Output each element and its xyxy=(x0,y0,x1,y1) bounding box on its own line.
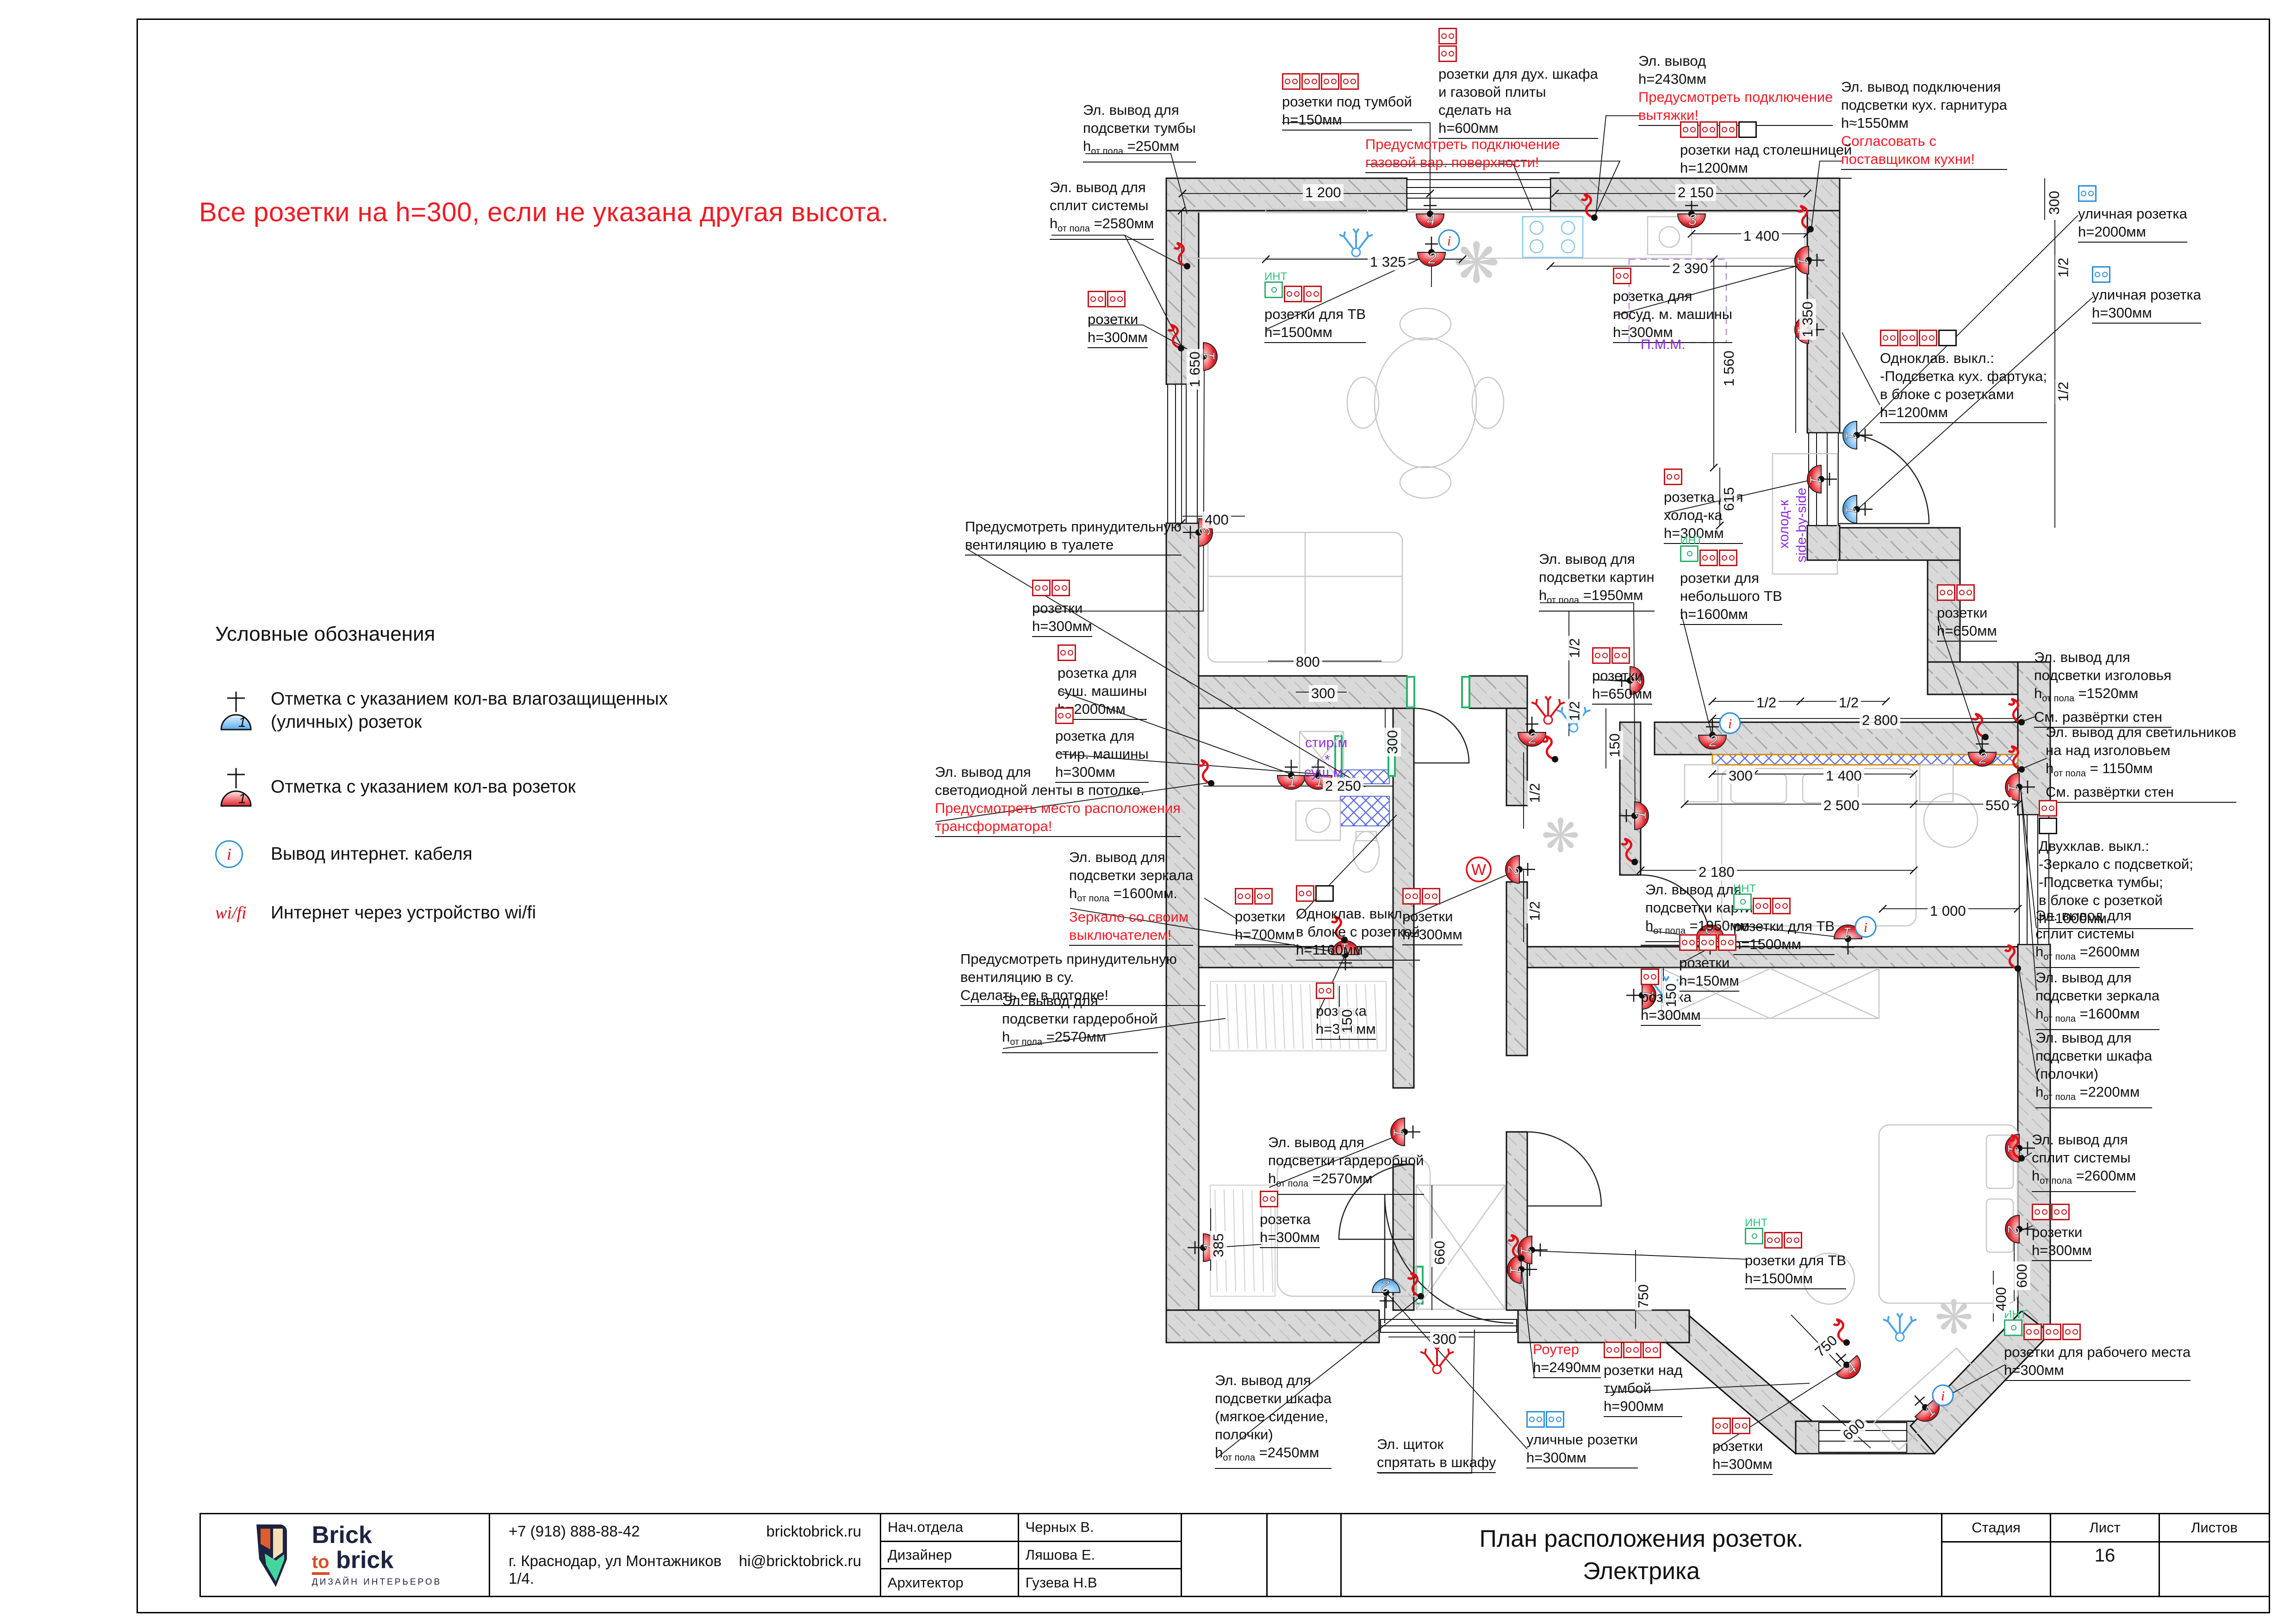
socket-icon xyxy=(1316,982,1376,999)
annotation: Эл. вывод дляподсветки гардеробнойhот по… xyxy=(1268,1133,1424,1195)
socket-icon xyxy=(2051,1204,2070,1220)
annotation-line: -Зеркало с подсветкой; xyxy=(2039,855,2193,873)
website-link[interactable]: bricktobrick.ru xyxy=(766,1523,861,1540)
svg-text:1: 1 xyxy=(2004,784,2022,793)
annotation-line: розетки xyxy=(1592,667,1652,685)
shower-zone xyxy=(1340,796,1389,826)
svg-text:1: 1 xyxy=(1842,506,1860,515)
socket-icon xyxy=(1282,73,1412,90)
annotation-line: hот пола = 1150мм xyxy=(2046,759,2236,783)
email-link[interactable]: hi@bricktobrick.ru xyxy=(739,1552,861,1587)
annotation: розеткиh=700мм xyxy=(1235,888,1295,945)
annotation-line: h=300мм xyxy=(2092,304,2201,322)
socket-icon xyxy=(1260,1191,1278,1207)
appliance-label: стир.м xyxy=(1305,735,1347,751)
annotation-line: розетки xyxy=(1235,907,1295,925)
dimension-label: 150 xyxy=(1663,981,1680,1010)
annotation-line: hот пола =1600мм. xyxy=(1069,884,1193,908)
annotation-line: розетки над xyxy=(1604,1361,1682,1379)
socket-icon xyxy=(1732,1418,1750,1434)
dimension-label: 300 xyxy=(2046,188,2063,217)
socket-icon xyxy=(1422,888,1440,905)
svg-text:i: i xyxy=(1864,920,1867,935)
socket-icon xyxy=(1260,1191,1320,1207)
annotation-line: розетки для дух. шкафа xyxy=(1438,65,1598,83)
annotation-line: спрятать в шкафу xyxy=(1377,1453,1496,1471)
socket-icon xyxy=(1880,330,1898,346)
brand-logo: Brick to brick ДИЗАЙН ИНТЕРЬЕРОВ xyxy=(201,1514,490,1596)
annotation-line: Эл. вывод для xyxy=(2035,1029,2152,1047)
sheet-number: 16 xyxy=(2051,1543,2159,1596)
annotation-line: Эл. вывод для xyxy=(1002,992,1158,1010)
annotation-line: в блоке с розетками xyxy=(1880,385,2047,403)
annotation-line: h=150мм xyxy=(1282,111,1412,129)
socket-icon xyxy=(1604,1342,1622,1358)
svg-text:1: 1 xyxy=(1632,811,1649,819)
dimension-label: 2 390 xyxy=(1670,260,1711,277)
annotation: Роутерh=2490мм xyxy=(1533,1340,1601,1378)
outdoor-socket-icon xyxy=(2092,266,2201,283)
annotation-line: розетки над столешницей xyxy=(1680,141,1852,159)
drawing-sheet: Все розетки на h=300, если не указана др… xyxy=(0,0,2296,1624)
annotation-line: сплит системы xyxy=(1050,196,1154,214)
annotation-line: Эл. вывод для светильников xyxy=(2046,723,2236,741)
dimension-label: 150 xyxy=(1339,1007,1356,1036)
socket-icon xyxy=(1235,888,1295,905)
annotation-line: подсветки кух. гарнитура xyxy=(1841,96,2007,114)
socket-icon xyxy=(1679,934,1739,951)
leader-line xyxy=(1842,332,1880,405)
annotation: розеткиh=650мм xyxy=(1592,647,1652,705)
sheet-title-line2: Электрика xyxy=(1583,1555,1700,1587)
annotation: Предусмотреть принудительнуювентиляцию в… xyxy=(965,518,1182,556)
role-value: Черных В. xyxy=(1019,1514,1181,1541)
socket-icon xyxy=(1316,982,1334,999)
socket-icon xyxy=(2032,1204,2092,1220)
contacts: +7 (918) 888-88-42 bricktobrick.ru г. Кр… xyxy=(490,1514,881,1596)
annotation-line: подсветки изголовья xyxy=(2034,666,2172,684)
dimension-label: 1 200 xyxy=(1303,184,1344,201)
annotation-line: розетки для ТВ xyxy=(1733,917,1835,935)
dimension-label: 385 xyxy=(1210,1231,1227,1260)
wifi-antenna-icon xyxy=(1531,696,1565,724)
dimension-label: 2 150 xyxy=(1675,184,1716,201)
annotation-line: Эл. вывод для xyxy=(1215,1371,1332,1389)
socket-icon xyxy=(1772,898,1791,914)
dimension-label: 300 xyxy=(1726,768,1755,784)
dimension-label: 1/2 xyxy=(2055,255,2072,280)
socket-icon xyxy=(1301,73,1320,90)
annotation: ИНТрозетки длянебольшого ТВh=1600мм xyxy=(1680,545,1782,625)
socket-icon xyxy=(2023,1324,2042,1340)
svg-text:2: 2 xyxy=(1528,730,1537,747)
annotation-line: суш. машины xyxy=(1058,682,1147,700)
dimension-label: 1 325 xyxy=(1368,254,1408,270)
socket-icon xyxy=(1753,898,1771,914)
socket-marker: 2 xyxy=(1505,856,1535,883)
socket-icon xyxy=(1719,121,1737,138)
annotation-line: h=600мм xyxy=(1438,119,1598,137)
dimension-label: 300 xyxy=(1430,1331,1459,1348)
annotation-line: на над изголовьем xyxy=(2046,741,2236,759)
socket-icon xyxy=(1235,888,1253,905)
svg-text:1: 1 xyxy=(1506,1266,1524,1275)
annotation-line: подсветки зеркала xyxy=(2035,987,2159,1005)
stage-label: Стадия xyxy=(1942,1514,2050,1543)
annotation: розетки надтумбойh=900мм xyxy=(1604,1342,1682,1417)
annotation: розеткаh=300мм xyxy=(1260,1191,1320,1248)
annotation-line: подсветки гардеробной xyxy=(1268,1151,1424,1169)
annotation: розеткиh=300мм xyxy=(1032,580,1092,637)
annotation: розетка дляпосуд. м. машиныh=300мм xyxy=(1613,268,1732,343)
annotation-line: Предусмотреть подключение xyxy=(1365,135,1560,153)
annotation-line: h=1500мм xyxy=(1264,323,1366,341)
annotation-line: розетки под тумбой xyxy=(1282,93,1412,111)
socket-icon xyxy=(1058,644,1076,661)
dimension-label: 800 xyxy=(1294,654,1322,670)
svg-text:2: 2 xyxy=(1381,1278,1390,1295)
annotation-line: Эл. вывод для xyxy=(1268,1133,1424,1151)
annotation-line: h=650мм xyxy=(1592,685,1652,703)
dimension-label: 1 560 xyxy=(1721,348,1737,389)
annotation-line: розетки xyxy=(1712,1437,1773,1455)
annotation-line: уличные розетки xyxy=(1526,1430,1638,1449)
socket-icon xyxy=(1296,885,1420,902)
annotation: уличная розеткаh=2000мм xyxy=(2078,185,2187,243)
annotation-line: h=2000мм xyxy=(2078,223,2187,241)
dimension-label: 1 000 xyxy=(1928,903,1968,919)
annotation-line: подсветки тумбы xyxy=(1083,119,1196,137)
socket-icon xyxy=(2032,1204,2050,1220)
annotation-line: сплит системы xyxy=(2032,1149,2136,1167)
annotation-line: h=700мм xyxy=(1235,925,1295,943)
socket-icon xyxy=(1284,286,1302,302)
dimension-label: 750 xyxy=(1635,1282,1652,1311)
annotation-line: посуд. м. машины xyxy=(1613,305,1732,323)
annotation-line: Предусмотреть подключение xyxy=(1638,88,1833,106)
annotation: Эл. вывод дляподсветки картинhот пола =1… xyxy=(1539,550,1655,612)
annotation: уличная розеткаh=300мм xyxy=(2092,266,2201,324)
annotation: Одноклав. выкл.в блоке с розеткойh=1160м… xyxy=(1296,885,1420,961)
svg-text:W: W xyxy=(1471,861,1486,879)
annotation-line: Согласовать с xyxy=(1841,132,2007,150)
annotation-line: Эл. вывод для xyxy=(935,763,1181,781)
socket-icon xyxy=(1937,584,1997,601)
socket-icon xyxy=(1680,121,1699,138)
sheet-label: Лист xyxy=(2051,1514,2159,1543)
svg-text:1: 1 xyxy=(1517,1247,1535,1255)
svg-text:1: 1 xyxy=(1842,432,1860,441)
socket-icon xyxy=(2039,800,2057,817)
socket-icon xyxy=(1592,647,1652,664)
annotation-line: в блоке с розеткой xyxy=(1296,923,1420,941)
socket-icon xyxy=(1623,1342,1642,1358)
socket-icon xyxy=(1899,330,1918,346)
socket-icon xyxy=(2039,800,2193,834)
dimension-label: 1/2 xyxy=(1527,781,1543,805)
socket-icon xyxy=(1719,550,1737,566)
wifi-antenna-icon xyxy=(1420,1346,1454,1374)
socket-icon xyxy=(1282,73,1300,90)
svg-text:1: 1 xyxy=(1806,476,1824,485)
svg-text:2: 2 xyxy=(1505,866,1522,875)
socket-icon: ИНТ xyxy=(1733,893,1835,914)
socket-icon xyxy=(1641,968,1659,985)
annotation: розеткиh=650мм xyxy=(1937,584,1997,642)
annotation-line: hот пола =2570мм xyxy=(1002,1028,1158,1051)
annotation-line: Эл. щиток xyxy=(1377,1435,1496,1453)
annotation-line: Эл. вывод для xyxy=(1050,178,1154,196)
leader-line xyxy=(1681,612,1712,737)
socket-icon xyxy=(1438,45,1457,62)
socket-icon xyxy=(1088,291,1106,307)
annotation-line: Эл. вывод для xyxy=(2035,906,2140,924)
annotation-line: вентиляцию в туалете xyxy=(965,536,1182,554)
annotation-line: Эл. вывод для xyxy=(1539,550,1655,568)
annotation-line: h=1500мм xyxy=(1733,935,1835,953)
annotation-line: полочки) xyxy=(1215,1425,1332,1443)
annotation-line: Эл. вывод для xyxy=(2032,1131,2136,1149)
annotation-line: Одноклав. выкл.: xyxy=(1880,349,2047,367)
dimension-label: 1/2 xyxy=(1527,899,1543,923)
internet-cable-icon: i xyxy=(1439,230,1459,250)
brand-tagline: ДИЗАЙН ИНТЕРЬЕРОВ xyxy=(312,1577,442,1587)
socket-icon xyxy=(1107,291,1126,307)
svg-text:❋: ❋ xyxy=(1935,1292,1973,1343)
annotation-line: розетки xyxy=(1937,604,1997,622)
dimension-label: 400 xyxy=(1202,512,1231,528)
annotation: Эл. вывод для светильниковна над изголов… xyxy=(2046,723,2236,803)
role-label: Нач.отдела xyxy=(881,1514,1019,1541)
socket-icon xyxy=(1088,291,1148,307)
annotation-line: розетки xyxy=(1032,599,1092,617)
annotation-line: светодиодной ленты в потолке. xyxy=(935,781,1181,799)
annotation-line: уличная розетка xyxy=(2092,286,2201,304)
role-value: Ляшова Е. xyxy=(1019,1542,1181,1568)
dimension-label: 1/2 xyxy=(1836,694,1861,711)
stage-column: Стадия xyxy=(1942,1514,2051,1596)
socket-icon xyxy=(1699,934,1717,951)
annotation-line: h=300мм xyxy=(1402,925,1462,943)
brand-name-mid: to xyxy=(312,1552,330,1575)
annotation-line: h=1600мм xyxy=(1680,605,1782,623)
dimension-label: 300 xyxy=(1309,685,1338,702)
internet-cable-icon: i xyxy=(1855,917,1876,937)
annotation-line: Зеркало со своим xyxy=(1069,908,1193,926)
empty-column xyxy=(1182,1514,1268,1596)
roles-table: Нач.отдела Черных В. Дизайнер Ляшова Е. … xyxy=(881,1514,1182,1596)
annotation: розеткиh=300мм xyxy=(2032,1204,2092,1261)
socket-icon xyxy=(1680,121,1852,138)
stage-value xyxy=(1942,1543,2050,1596)
switch-icon xyxy=(2039,818,2057,834)
annotation: Эл. вывод дляподсветки изголовьяhот пола… xyxy=(2034,648,2172,728)
address: г. Краснодар, ул Монтажников 1/4. xyxy=(509,1552,725,1587)
role-label: Архитектор xyxy=(881,1569,1019,1596)
dimension-label: 550 xyxy=(1983,797,2012,814)
annotation-line: h=300мм xyxy=(1260,1228,1320,1246)
socket-icon xyxy=(1055,707,1074,724)
annotation: Эл. выводh=2430ммПредусмотреть подключен… xyxy=(1638,52,1833,126)
appliance-label: суш.м. xyxy=(1304,765,1346,781)
socket-icon xyxy=(2062,1324,2081,1340)
dimension-label: 615 xyxy=(1721,485,1737,513)
socket-icon xyxy=(1937,584,1955,601)
socket-icon xyxy=(1764,1232,1783,1249)
electrical-outlet-squiggle-icon xyxy=(1542,736,1558,762)
appliance-label: П.М.М. xyxy=(1641,337,1686,353)
dimension-label: 2 800 xyxy=(1860,712,1900,729)
annotation-line: розетки для ТВ xyxy=(1264,305,1366,323)
annotation: Эл. вывод подключенияподсветки кух. гарн… xyxy=(1841,78,2007,170)
socket-icon xyxy=(1321,73,1339,90)
socket-icon xyxy=(1784,1232,1802,1249)
annotation-line: (полочки) xyxy=(2035,1065,2152,1083)
appliance-label: холод-к xyxy=(1776,500,1792,549)
annotation-line: hот пола =2580мм xyxy=(1050,214,1154,238)
dimension-label: 1/2 xyxy=(1567,699,1583,723)
annotation-line: hот пола =2450мм xyxy=(1215,1443,1332,1467)
svg-text:2: 2 xyxy=(1979,750,1988,767)
socket-icon: ИНТ xyxy=(1680,545,1782,566)
annotation-line: hот пола =2570мм xyxy=(1268,1169,1424,1193)
internet-cable-icon: i xyxy=(1933,1385,1953,1405)
phone: +7 (918) 888-88-42 xyxy=(509,1523,640,1540)
annotation-line: hот пола =250мм xyxy=(1083,137,1196,161)
svg-text:❋: ❋ xyxy=(1453,232,1500,294)
outdoor-socket-icon xyxy=(1546,1411,1564,1428)
annotation: ИНТрозетки для ТВh=1500мм xyxy=(1264,281,1366,343)
switch-icon xyxy=(1738,121,1757,138)
annotation-line: стир. машины xyxy=(1055,745,1149,763)
internet-socket-icon xyxy=(1733,893,1752,910)
annotation-line: -Подсветка тумбы; xyxy=(2039,873,2193,891)
annotation-line: розетка для xyxy=(1613,287,1732,305)
wifi-antenna-icon xyxy=(1883,1313,1916,1341)
socket-icon xyxy=(1402,888,1421,905)
socket-icon: ИНТ xyxy=(1264,281,1366,302)
annotation-line: трансформатора! xyxy=(935,817,1181,835)
brand-logo-icon xyxy=(248,1520,304,1590)
brand-name-top: Brick xyxy=(312,1522,372,1549)
svg-text:2: 2 xyxy=(1709,732,1718,750)
internet-socket-icon xyxy=(1264,281,1283,298)
role-value: Гузева Н.В xyxy=(1019,1569,1181,1596)
dimension-label: 1/2 xyxy=(2055,379,2072,404)
socket-icon xyxy=(1712,1418,1731,1434)
dimension-label: 660 xyxy=(1431,1238,1448,1267)
annotation: Эл. вывод дляподсветки зеркалаhот пола =… xyxy=(2035,968,2159,1030)
dimension-label: 1/2 xyxy=(1567,636,1583,660)
annotation: Эл. вывод длясветодиодной ленты в потолк… xyxy=(935,763,1181,837)
internet-socket-icon xyxy=(1680,545,1699,562)
annotation: уличные розеткиh=300мм xyxy=(1526,1411,1638,1468)
leader-line xyxy=(1388,1294,1527,1449)
socket-icon: ИНТ xyxy=(1745,1228,1846,1249)
annotation: розеткиh=300мм xyxy=(1088,291,1148,348)
annotation-line: Предусмотреть принудительную xyxy=(960,950,1177,968)
annotation: Эл. вывод длясплит системыhот пола =2600… xyxy=(2032,1131,2136,1192)
socket-icon xyxy=(1643,1342,1661,1358)
outdoor-socket-icon xyxy=(1526,1411,1545,1428)
socket-icon xyxy=(1438,28,1598,62)
role-label: Дизайнер xyxy=(881,1542,1019,1568)
annotation: ИНТрозетки для ТВh=1500мм xyxy=(1733,893,1835,955)
annotation: розеткиh=300мм xyxy=(1402,888,1462,945)
dimension-label: 400 xyxy=(1993,1285,2010,1313)
annotation-line: h=300мм xyxy=(1526,1449,1638,1467)
internet-socket-icon xyxy=(2004,1319,2022,1336)
svg-text:i: i xyxy=(1941,1388,1945,1404)
dimension-label: 1 400 xyxy=(1823,768,1864,784)
wifi-antenna-icon xyxy=(1339,229,1373,256)
leader-line xyxy=(1204,898,1237,919)
svg-text:4: 4 xyxy=(1427,211,1436,229)
annotation: Эл. вывод дляподсветки шкафа(мягкое сиде… xyxy=(1215,1371,1332,1469)
wall-lamp-marker: W xyxy=(1467,857,1491,881)
sheet-title-line1: План расположения розеток. xyxy=(1480,1523,1804,1555)
annotation-line: h=300мм xyxy=(1088,328,1148,346)
annotation: ИНТрозетки для ТВh=1500мм xyxy=(1745,1228,1846,1289)
annotation-line: подсветки шкафа xyxy=(2035,1047,2152,1065)
annotation-line: hот пола =2600мм xyxy=(2035,943,2140,966)
annotation-line: h=1200мм xyxy=(1680,159,1852,177)
annotation-line: розетки для рабочего места xyxy=(2004,1343,2190,1361)
socket-icon xyxy=(1664,468,1682,485)
annotation-line: уличная розетка xyxy=(2078,205,2187,223)
socket-icon xyxy=(1718,934,1736,951)
annotation-line: поставщиком кухни! xyxy=(1841,150,2007,168)
socket-icon xyxy=(1303,286,1322,302)
dimension-label: 150 xyxy=(1606,731,1623,760)
annotation-line: сплит системы xyxy=(2035,924,2140,943)
socket-icon xyxy=(1058,644,1147,661)
switch-icon xyxy=(1938,330,1957,346)
socket-icon xyxy=(1956,584,1975,601)
annotation: розеткиh=300мм xyxy=(1712,1418,1773,1475)
annotation-line: -Подсветка кух. фартука; xyxy=(1880,367,2047,385)
annotation-line: Одноклав. выкл. xyxy=(1296,905,1420,923)
empty-column xyxy=(1268,1514,1342,1596)
socket-icon xyxy=(1438,28,1457,44)
socket-icon xyxy=(1604,1342,1682,1358)
annotation-line: hот пола =2600мм xyxy=(2032,1167,2136,1190)
socket-icon xyxy=(1032,580,1051,596)
annotation-line: Предусмотреть принудительную xyxy=(965,518,1182,536)
annotation-line: h=300мм xyxy=(2004,1361,2190,1379)
annotation-line: розетки xyxy=(2032,1223,2092,1241)
annotation-line: розетки для ТВ xyxy=(1745,1251,1846,1269)
svg-text:2: 2 xyxy=(1428,250,1437,267)
socket-icon xyxy=(1880,330,2047,346)
annotation-line: h=300мм xyxy=(1032,617,1092,635)
socket-icon xyxy=(1613,268,1631,284)
annotation-line: Роутер xyxy=(1533,1340,1601,1358)
socket-icon xyxy=(1032,580,1092,596)
role-row: Нач.отдела Черных В. xyxy=(881,1514,1181,1542)
annotation-line: подсветки шкафа xyxy=(1215,1389,1332,1407)
svg-text:3: 3 xyxy=(1196,527,1213,536)
dimension-label: 2 500 xyxy=(1821,797,1862,814)
socket-icon xyxy=(1699,121,1718,138)
annotation: Эл. вывод длясплит системыhот пола =2600… xyxy=(2035,906,2140,968)
annotation-line: h=300мм xyxy=(1712,1455,1773,1473)
annotation-line: (мягкое сидение, xyxy=(1215,1407,1332,1425)
annotation-line: h=1160мм xyxy=(1296,941,1420,959)
appliance-label: side-by-side xyxy=(1794,487,1810,562)
dimension-label: 1 650 xyxy=(1187,349,1203,390)
annotation: Эл. вывод длясплит системыhот пола =2580… xyxy=(1050,178,1154,240)
